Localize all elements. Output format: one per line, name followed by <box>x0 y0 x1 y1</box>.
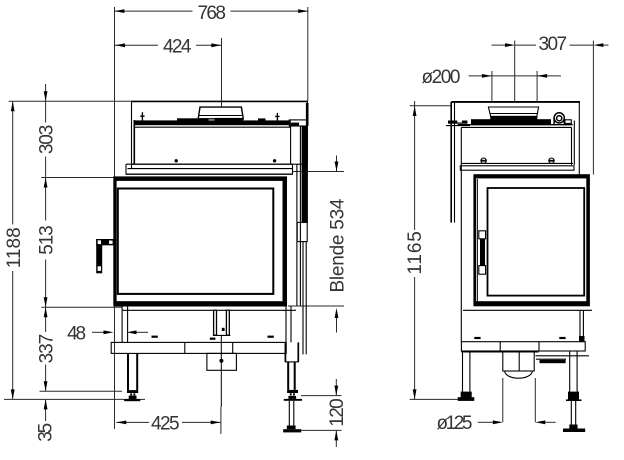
svg-text:1188: 1188 <box>4 227 25 268</box>
svg-text:303: 303 <box>37 125 58 155</box>
svg-text:48: 48 <box>67 323 86 344</box>
svg-text:Blende 534: Blende 534 <box>328 198 349 292</box>
svg-text:35: 35 <box>36 423 57 442</box>
svg-text:ø200: ø200 <box>422 67 461 88</box>
svg-text:424: 424 <box>163 37 192 58</box>
svg-text:307: 307 <box>539 34 568 55</box>
svg-text:120: 120 <box>327 398 348 427</box>
svg-text:768: 768 <box>197 3 226 24</box>
svg-text:513: 513 <box>37 225 58 255</box>
svg-text:ø125: ø125 <box>437 413 473 434</box>
svg-text:337: 337 <box>37 334 58 364</box>
svg-text:425: 425 <box>151 414 180 435</box>
svg-text:1165: 1165 <box>405 231 426 275</box>
